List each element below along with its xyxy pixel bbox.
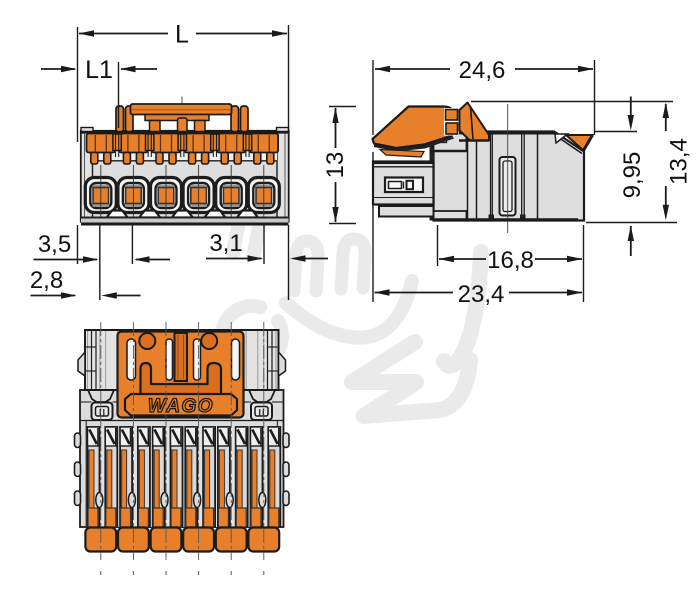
svg-text:23,4: 23,4	[458, 281, 505, 308]
svg-text:16,8: 16,8	[487, 247, 534, 274]
svg-text:L: L	[175, 21, 189, 49]
svg-text:3,1: 3,1	[209, 230, 242, 257]
svg-text:9,95: 9,95	[619, 152, 646, 199]
svg-text:24,6: 24,6	[459, 57, 506, 84]
svg-text:3,5: 3,5	[38, 231, 71, 258]
svg-text:WAGO: WAGO	[148, 396, 214, 417]
svg-text:L1: L1	[85, 56, 113, 84]
svg-text:13: 13	[322, 152, 349, 179]
svg-text:2,8: 2,8	[30, 267, 63, 294]
svg-text:13,4: 13,4	[666, 138, 693, 185]
